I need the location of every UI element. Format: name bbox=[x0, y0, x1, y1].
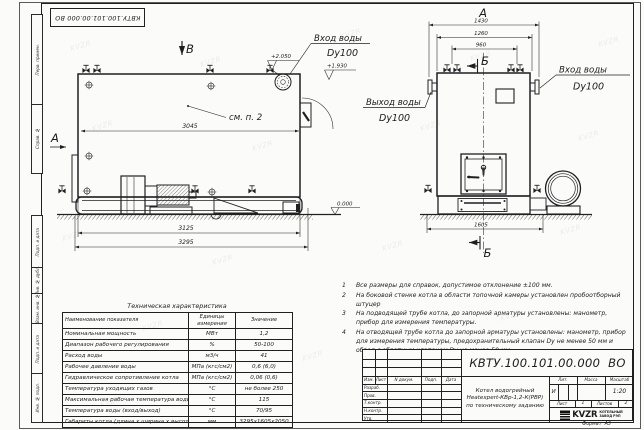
water-inlet-dn: Dy100 bbox=[327, 48, 358, 59]
kvzr-logo-text: KVZR bbox=[572, 410, 597, 420]
note-item: 1 Все размеры для справок, допустимое от… bbox=[342, 282, 632, 291]
tb-sheets-value: 2 bbox=[618, 400, 634, 408]
tb-header-ndoc: N докум. bbox=[387, 376, 421, 384]
table-row: Температура воды (вход/выход)°С70/95 bbox=[63, 406, 293, 417]
burner-fan-assembly bbox=[72, 155, 196, 214]
table-row: Номинальная мощностьМВт1,2 bbox=[63, 329, 293, 340]
level-mark-0000: 0.000 bbox=[331, 202, 360, 215]
note-item: 3 На подводящей трубе котла, до запорной… bbox=[342, 310, 632, 328]
level-2050-value: +2.050 bbox=[271, 54, 292, 60]
notes-list: 1 Все размеры для справок, допустимое от… bbox=[342, 282, 632, 357]
col-header-value: Значение bbox=[236, 313, 293, 329]
section-mark-b-top: Б bbox=[467, 54, 489, 73]
tb-sign-razrab: Разраб. bbox=[364, 384, 387, 392]
tb-header-data: Дата bbox=[441, 376, 461, 384]
ground-line-front bbox=[420, 215, 592, 220]
tb-header-podp: Подп. bbox=[421, 376, 441, 384]
dim-1430-value: 1430 bbox=[474, 19, 488, 25]
tb-sign-prov: Пров. bbox=[364, 391, 387, 399]
tb-title-line3: по техническому заданию bbox=[466, 403, 544, 410]
tech-characteristics: Техническая характеристика Наименование … bbox=[62, 302, 292, 428]
kvzr-logo-caption: КОТЕЛЬНЫЙ ЗАВОД РЭП bbox=[599, 411, 622, 419]
note-text: На подводящей трубе котла, до запорной а… bbox=[356, 310, 632, 328]
drawing-sheet: KVZR KVZR KVZR KVZR KVZR KVZR KVZR KVZR … bbox=[0, 0, 644, 430]
level-mark-1930: +1.930 bbox=[325, 64, 357, 80]
view-arrow-a: А bbox=[50, 131, 66, 147]
tb-mass-header: Масса bbox=[577, 376, 605, 384]
tb-sheet-label: Лист bbox=[549, 400, 575, 408]
note-number: 3 bbox=[342, 310, 356, 328]
tech-table: Наименование показателя Единицы измерени… bbox=[62, 312, 293, 428]
dim-3125-value: 3125 bbox=[178, 225, 193, 232]
lifting-lug-icons bbox=[83, 81, 217, 197]
format-label: Формат А3 bbox=[560, 422, 633, 427]
dim-3045: 3045 bbox=[81, 123, 299, 131]
tb-header-izm: Изм. bbox=[363, 376, 375, 384]
front-view: А 1430 1260 960 bbox=[363, 6, 630, 260]
tb-title-line1: Котел водогрейный bbox=[476, 388, 535, 395]
tb-scale-value: 1:20 bbox=[605, 384, 634, 400]
level-0000-value: 0.000 bbox=[337, 202, 353, 208]
table-row: Рабочее давление водыМПа (кгс/см2)0,6 (6… bbox=[63, 362, 293, 373]
top-valve-icons-side bbox=[82, 65, 273, 73]
section-mark-b-bottom: Б bbox=[469, 236, 492, 260]
tb-lit-value: И bbox=[549, 384, 558, 400]
note-number: 1 bbox=[342, 282, 356, 291]
water-outlet-text: Выход воды bbox=[366, 98, 421, 108]
boiler-body-side bbox=[78, 74, 300, 197]
tb-product-title: Котел водогрейный Heatexpert-КВр-1,2-К(Р… bbox=[461, 376, 549, 422]
tb-doc-number: КВТУ.100.101.00.000 ВО bbox=[461, 350, 634, 376]
tb-sign-tkontr: Т.контр. bbox=[364, 399, 387, 407]
tech-table-header-row: Наименование показателя Единицы измерени… bbox=[63, 313, 293, 329]
table-row: Температура уходящих газов°Сне более 250 bbox=[63, 384, 293, 395]
tb-sheet-value: 1 bbox=[575, 400, 591, 408]
table-row: Диапазон рабочего регулирования%50-100 bbox=[63, 340, 293, 351]
note-text: На боковой стенке котла в области топочн… bbox=[356, 292, 632, 310]
kvzr-logo-icon bbox=[560, 410, 570, 420]
table-row: Габариты котла (длина х ширина х высота)… bbox=[63, 417, 293, 428]
side-valve-icons-front bbox=[424, 185, 540, 193]
water-inlet-dn-front: Dy100 bbox=[573, 82, 604, 93]
note-reference: см. п. 2 bbox=[187, 105, 262, 123]
company-logo: KVZR КОТЕЛЬНЫЙ ЗАВОД РЭП bbox=[549, 407, 634, 422]
water-inlet-text-front: Вход воды bbox=[559, 66, 607, 76]
view-arrow-a-label: А bbox=[50, 131, 59, 145]
tb-sheets-label: Листов bbox=[591, 400, 618, 408]
note-number: 4 bbox=[342, 329, 356, 355]
dim-1605-value: 1605 bbox=[474, 223, 488, 229]
section-mark-b-bottom-label: Б bbox=[484, 246, 492, 260]
tb-header-list: Лист bbox=[375, 376, 387, 384]
water-outlet-callout: Выход воды Dy100 bbox=[363, 92, 431, 124]
water-inlet-text: Вход воды bbox=[314, 34, 362, 44]
title-block: Изм. Лист N докум. Подп. Дата Разраб. Пр… bbox=[362, 349, 633, 421]
section-mark-v-label: В bbox=[186, 42, 194, 56]
water-inlet-flange-icon bbox=[275, 74, 291, 90]
note-reference-text: см. п. 2 bbox=[229, 113, 262, 123]
section-mark-b-top-label: Б bbox=[481, 54, 489, 68]
outlet-flange-icon bbox=[428, 80, 437, 94]
dim-960-value: 960 bbox=[476, 43, 487, 49]
sight-glass bbox=[496, 89, 514, 103]
col-header-units: Единицы измерения bbox=[189, 313, 236, 329]
dim-3295-value: 3295 bbox=[178, 239, 193, 246]
table-row: Гидравлическое сопротивление котлаМПа (к… bbox=[63, 373, 293, 384]
tb-scale-header: Масштаб bbox=[605, 376, 634, 384]
dim-960: 960 bbox=[452, 43, 517, 50]
dim-1260-value: 1260 bbox=[474, 31, 488, 37]
water-outlet-dn: Dy100 bbox=[379, 113, 410, 124]
tech-table-title: Техническая характеристика bbox=[62, 302, 292, 310]
table-row: Максимальная рабочая температура воды°С1… bbox=[63, 395, 293, 406]
tb-sign-utv: Утв. bbox=[364, 414, 387, 422]
note-item: 2 На боковой стенке котла в области топо… bbox=[342, 292, 632, 310]
level-mark-2050: +2.050 bbox=[268, 54, 300, 76]
level-1930-value: +1.930 bbox=[327, 64, 348, 70]
support-skid-front bbox=[438, 196, 530, 214]
inlet-flange-icon bbox=[530, 80, 539, 94]
water-inlet-callout-front: Вход воды Dy100 bbox=[540, 66, 630, 93]
tb-sign-nkontr: Н.контр. bbox=[364, 407, 387, 415]
dim-3045-value: 3045 bbox=[182, 123, 197, 130]
col-header-name: Наименование показателя bbox=[63, 313, 189, 329]
section-mark-v: В bbox=[182, 41, 194, 56]
side-door-detail bbox=[300, 98, 333, 129]
ground-line-side bbox=[57, 215, 341, 220]
note-number: 2 bbox=[342, 292, 356, 310]
tb-lit-header: Лит. bbox=[549, 376, 577, 384]
note-text: Все размеры для справок, допустимое откл… bbox=[356, 282, 553, 291]
table-row: Расход водым3/ч41 bbox=[63, 351, 293, 362]
dim-1260: 1260 bbox=[437, 31, 532, 38]
boiler-body-front bbox=[437, 73, 530, 196]
dim-1430: 1430 bbox=[429, 19, 539, 26]
side-view: 3045 см. п. 2 В А +2. bbox=[50, 34, 370, 251]
tb-title-line2: Heatexpert-КВр-1,2-К(РВР) bbox=[467, 395, 544, 402]
blower-fan bbox=[530, 171, 581, 214]
